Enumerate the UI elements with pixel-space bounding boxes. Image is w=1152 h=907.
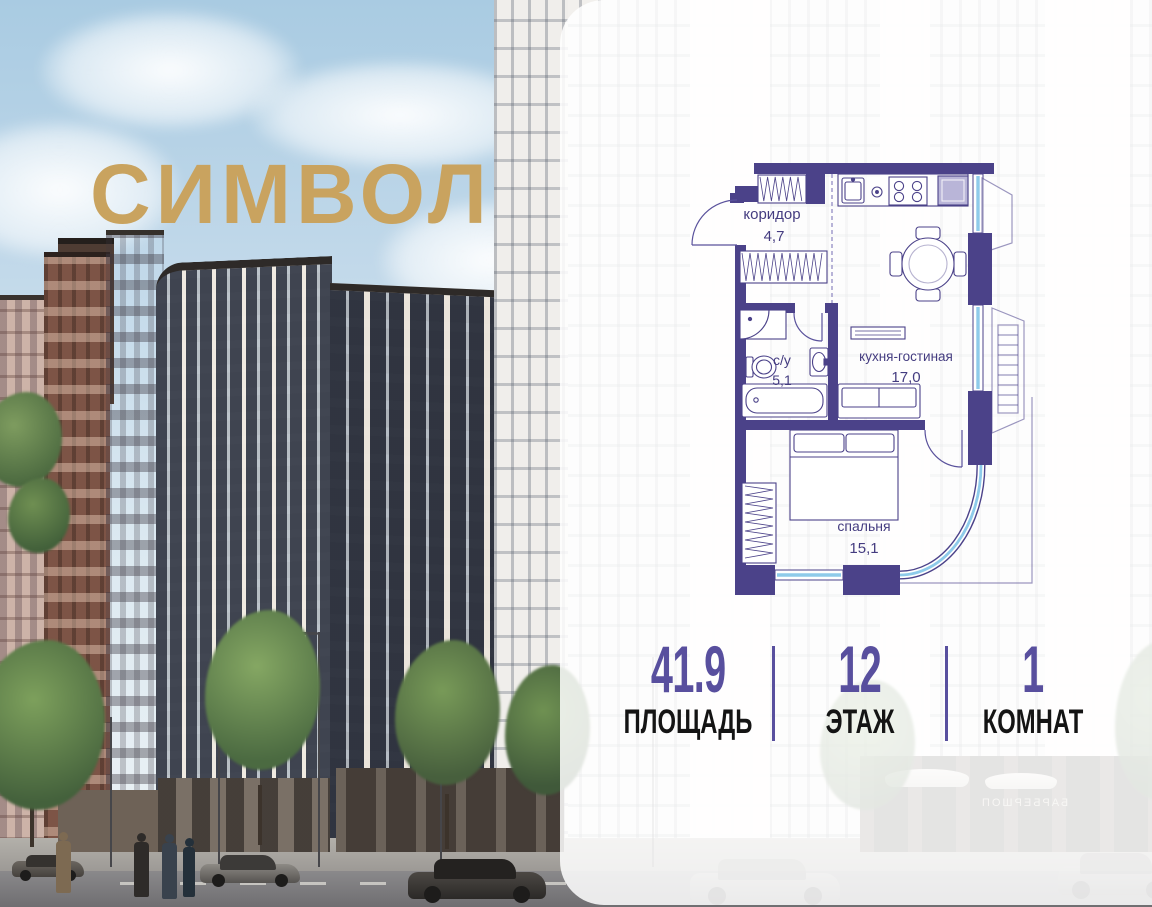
person	[134, 842, 149, 897]
room-name-corridor: коридор	[743, 206, 800, 223]
kitchen-counter-icon	[838, 174, 968, 206]
bed-icon	[790, 430, 898, 520]
room-area-bedroom: 15,1	[849, 540, 878, 557]
bedroom-wardrobe-icon	[742, 483, 776, 563]
stat-floor-value: 12	[839, 641, 882, 697]
listing-card: БАРБЕРШОП	[0, 0, 1152, 907]
stat-floor: 12 ЭТАЖ	[760, 641, 960, 739]
stat-area-label: ПЛОЩАДЬ	[618, 705, 758, 739]
person	[183, 847, 195, 897]
car	[408, 859, 546, 903]
car	[12, 855, 84, 881]
room-area-kitchen-living: 17,0	[891, 369, 920, 386]
room-name-bathroom: с/у	[773, 352, 791, 368]
floorplan-drawing: коридор 4,7 с/у 5,1 кухня-гостиная 17,0 …	[680, 153, 1045, 608]
tv-console-icon	[851, 327, 905, 339]
dining-table-icon	[890, 227, 966, 301]
storefront	[158, 778, 330, 852]
sofa-icon	[838, 384, 920, 418]
stat-rooms: 1 КОМНАТ	[933, 641, 1133, 739]
room-area-corridor: 4,7	[764, 228, 785, 245]
car	[200, 855, 300, 887]
bathtub-icon	[742, 384, 827, 417]
shower-icon	[740, 310, 786, 339]
tree-trunk	[258, 785, 262, 845]
stat-rooms-value: 1	[1022, 641, 1043, 697]
room-name-kitchen-living: кухня-гостиная	[859, 349, 953, 364]
bathroom-sink-icon	[810, 348, 829, 376]
lamppost	[110, 717, 112, 867]
stat-area-value: 41.9	[651, 641, 726, 697]
room-name-bedroom: спальня	[837, 518, 890, 534]
person	[56, 841, 71, 893]
floorplan: коридор 4,7 с/у 5,1 кухня-гостиная 17,0 …	[680, 153, 1045, 608]
stat-rooms-label: КОМНАТ	[963, 705, 1103, 739]
person	[162, 843, 177, 899]
tree-trunk	[445, 794, 449, 849]
brand-logo: СИМВОЛ	[90, 146, 492, 243]
room-area-bathroom: 5,1	[772, 372, 792, 388]
stat-area: 41.9 ПЛОЩАДЬ	[588, 641, 788, 739]
stat-floor-label: ЭТАЖ	[790, 705, 930, 739]
